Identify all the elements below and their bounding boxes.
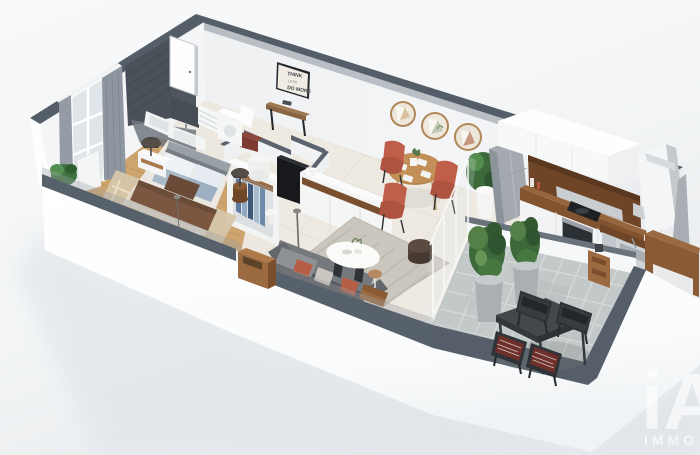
svg-text:IMMO: IMMO <box>644 432 698 448</box>
